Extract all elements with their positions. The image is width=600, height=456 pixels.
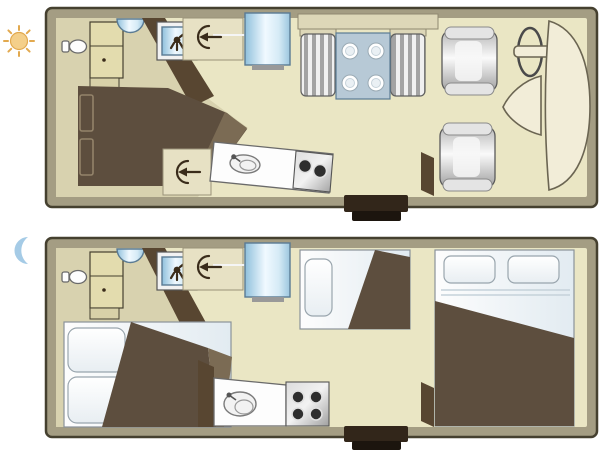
day-floorplan: [4, 8, 597, 221]
refrigerator: [245, 13, 290, 70]
moon-icon: [14, 237, 28, 264]
bed-end-board: [198, 360, 214, 427]
pillow: [444, 256, 495, 283]
place-setting: [368, 43, 384, 59]
front-vent-panel: [183, 18, 243, 60]
entry-step: [344, 426, 408, 450]
dinette-bench-left: [301, 34, 335, 96]
dinette-bed: [300, 250, 410, 329]
floorplan-svg: [0, 0, 600, 456]
kitchen-sink: [224, 392, 256, 416]
kitchen-counter-night: [214, 378, 329, 426]
door-jamb: [421, 382, 434, 427]
wardrobe: [90, 22, 123, 89]
dinette-bench-right: [391, 34, 425, 96]
entry-step: [344, 195, 408, 221]
burner: [292, 408, 304, 420]
place-setting: [342, 75, 358, 91]
burner: [299, 160, 312, 173]
night-floorplan: [14, 237, 597, 450]
floorplan-image: [0, 0, 600, 456]
wardrobe: [90, 252, 123, 319]
stove: [286, 382, 329, 426]
place-setting: [368, 75, 384, 91]
dinette: [300, 29, 426, 99]
toilet: [62, 271, 87, 284]
burner: [314, 165, 327, 178]
sun-icon: [4, 26, 34, 56]
overcab-bed: [435, 250, 574, 426]
driver-seat: [442, 27, 497, 95]
refrigerator: [245, 243, 290, 302]
burner: [310, 408, 322, 420]
pillow: [508, 256, 559, 283]
front-vent-panel: [183, 248, 243, 290]
passenger-seat: [440, 123, 495, 191]
burner: [292, 391, 304, 403]
pillow: [305, 259, 332, 316]
place-setting: [342, 43, 358, 59]
burner: [310, 391, 322, 403]
toilet: [62, 40, 87, 53]
door-jamb: [421, 152, 434, 196]
pillow: [68, 328, 125, 372]
overhead-locker: [298, 14, 438, 29]
